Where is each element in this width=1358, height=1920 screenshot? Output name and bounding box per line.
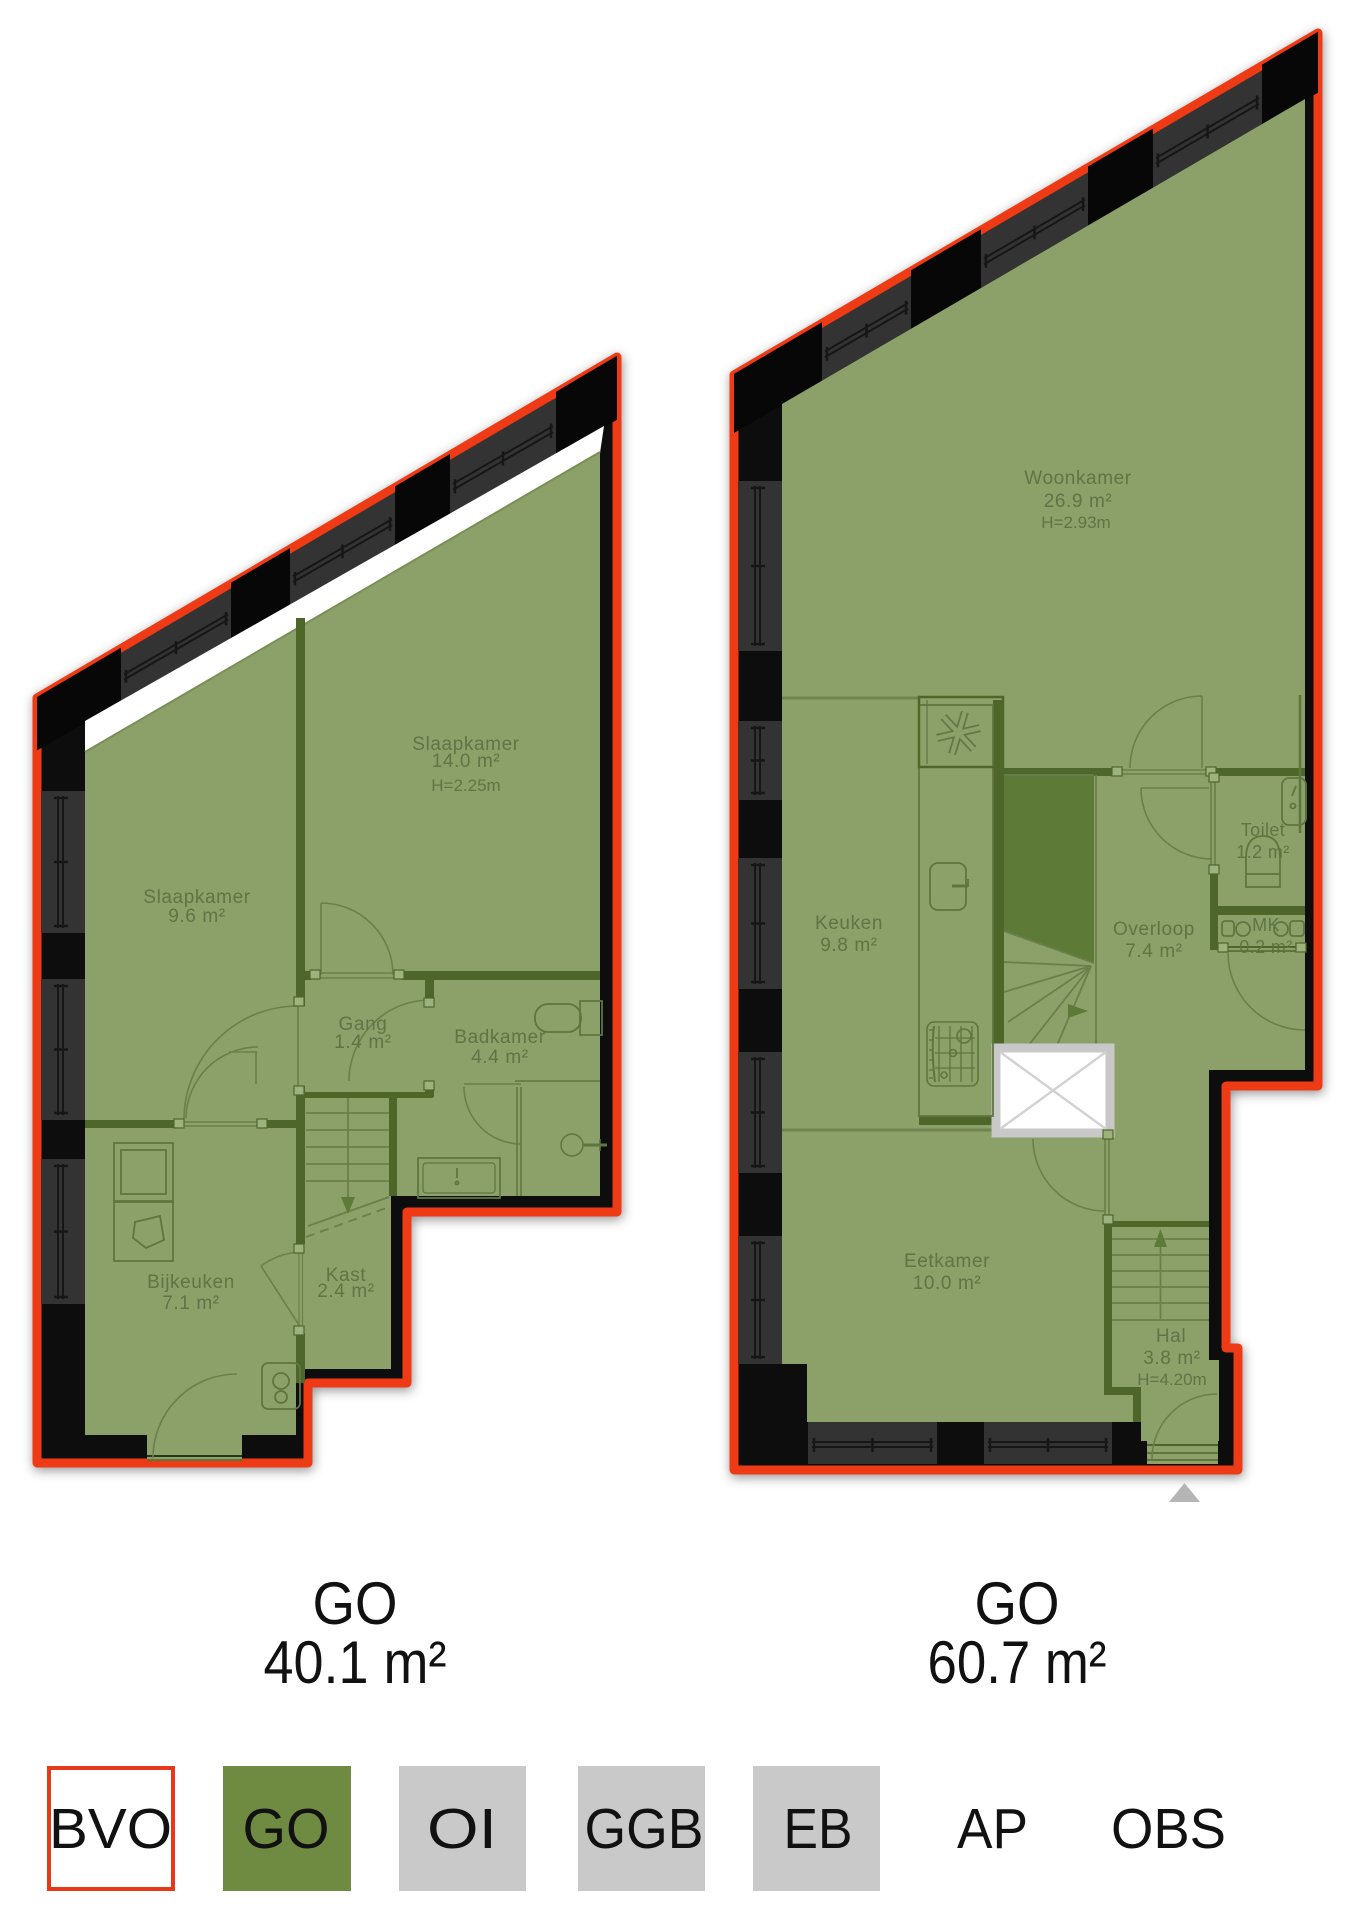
svg-text:MK: MK [1252,915,1280,935]
svg-text:4.4 m²: 4.4 m² [471,1047,528,1068]
svg-text:10.0 m²: 10.0 m² [913,1273,982,1294]
svg-text:60.7 m²: 60.7 m² [928,1629,1107,1696]
svg-text:7.4 m²: 7.4 m² [1125,941,1182,962]
svg-text:Hal: Hal [1156,1326,1186,1347]
svg-text:9.6 m²: 9.6 m² [168,906,225,927]
svg-text:H=2.93m: H=2.93m [1041,513,1110,532]
svg-text:Bijkeuken: Bijkeuken [147,1272,235,1293]
svg-text:1.4 m²: 1.4 m² [334,1032,391,1053]
svg-text:EB: EB [784,1797,853,1861]
svg-text:7.1 m²: 7.1 m² [162,1293,219,1314]
svg-text:GO: GO [313,1570,398,1637]
svg-text:BVO: BVO [49,1797,172,1861]
svg-text:OI: OI [427,1797,497,1861]
svg-text:2.4 m²: 2.4 m² [317,1281,374,1302]
svg-text:H=2.25m: H=2.25m [431,776,500,795]
svg-text:1.2 m²: 1.2 m² [1236,842,1289,862]
svg-text:GO: GO [975,1570,1060,1637]
svg-text:GO: GO [243,1797,330,1861]
svg-text:Badkamer: Badkamer [454,1027,545,1048]
svg-text:Keuken: Keuken [815,913,883,934]
svg-text:0.2 m²: 0.2 m² [1239,937,1292,957]
svg-text:H=4.20m: H=4.20m [1137,1370,1206,1389]
svg-text:Overloop: Overloop [1113,919,1195,940]
svg-text:9.8 m²: 9.8 m² [820,935,877,956]
svg-text:Eetkamer: Eetkamer [904,1251,990,1272]
svg-text:Slaapkamer: Slaapkamer [143,887,250,908]
svg-text:Toilet: Toilet [1241,820,1285,840]
svg-text:3.8 m²: 3.8 m² [1143,1348,1200,1369]
svg-text:14.0 m²: 14.0 m² [432,751,501,772]
svg-text:GGB: GGB [585,1797,704,1861]
svg-text:Woonkamer: Woonkamer [1024,468,1132,489]
svg-text:40.1 m²: 40.1 m² [264,1629,447,1696]
svg-text:AP: AP [957,1797,1028,1861]
svg-text:26.9 m²: 26.9 m² [1044,491,1113,512]
svg-text:OBS: OBS [1111,1797,1226,1861]
